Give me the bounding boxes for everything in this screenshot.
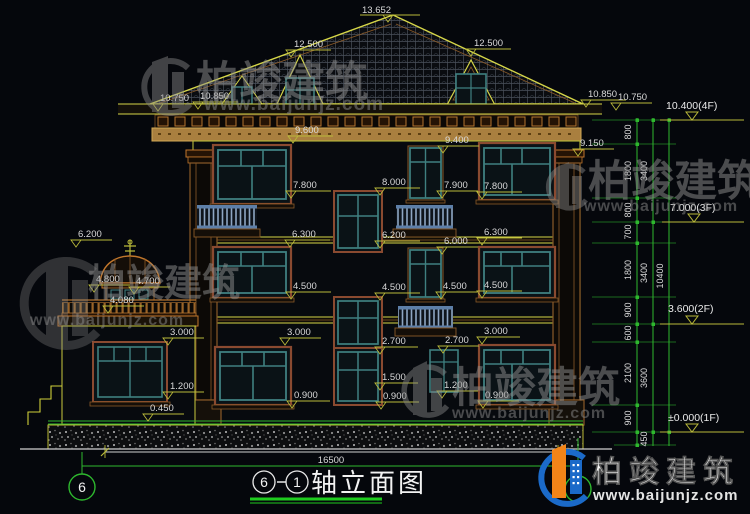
- seg-1800b: 1800: [623, 260, 633, 280]
- seg-2100: 2100: [623, 363, 633, 383]
- window-2f-small: [408, 248, 443, 299]
- watermark-bottom: 柏竣建筑 www.baijunjz.com: [404, 361, 620, 422]
- dim-w1r-head: 3.000: [484, 326, 508, 337]
- dim-stair3-sill: 6.200: [382, 230, 406, 241]
- dim-w2s-head: 6.000: [444, 236, 468, 247]
- seg-800a: 800: [623, 124, 633, 139]
- railing-3f-mid: [396, 205, 453, 229]
- window-3f-stair: [334, 191, 382, 252]
- dim-w3r: 7.800: [484, 181, 508, 192]
- seg-900a: 900: [623, 302, 633, 317]
- dim-ridge: 13.652: [362, 5, 391, 16]
- dim-w1s-head: 2.700: [445, 335, 469, 346]
- seg-600: 600: [623, 325, 633, 340]
- title-text: 轴立面图: [311, 468, 427, 498]
- overall-10400: 10400: [655, 263, 665, 288]
- watermark-top: 柏竣建筑 www.baijunjz.com: [144, 56, 384, 115]
- dim-w2d: 4.500: [484, 280, 508, 291]
- dim-stair3-head: 8.000: [382, 177, 406, 188]
- dim-annex-sill: 1.200: [170, 381, 194, 392]
- watermark-url-bottom: www.baijunjz.com: [451, 405, 606, 422]
- annex-window: [93, 342, 167, 402]
- seg-700: 700: [623, 224, 633, 239]
- window-1f-stair: [334, 348, 382, 405]
- level-4f: 10.400(4F): [666, 100, 717, 112]
- dim-w3l: 7.800: [293, 180, 317, 191]
- dim-w2a: 4.500: [293, 281, 317, 292]
- dim-turret-finial: 6.200: [78, 229, 102, 240]
- ground: [20, 421, 612, 449]
- dim-w2b: 4.500: [382, 282, 406, 293]
- railing-3f-left: [197, 205, 257, 229]
- floor-3400b: 3400: [639, 263, 649, 283]
- dim-w3s: 7.900: [444, 180, 468, 191]
- floor-band-2f: [193, 317, 580, 323]
- dim-stair1-head: 2.700: [382, 336, 406, 347]
- level-1f: ±0.000(1F): [668, 412, 719, 424]
- dim-overall-width: 16500: [318, 455, 344, 466]
- seg-450: 450: [639, 431, 649, 446]
- window-2f-stair: [334, 297, 382, 348]
- elevation-drawing: 800 1800 800 700 1800 900 600 2100 900 4…: [0, 0, 750, 514]
- dim-dormer-left: 12.500: [294, 39, 323, 50]
- railing-2f-mid: [398, 306, 453, 329]
- watermark-url-left: www.baijunjz.com: [29, 312, 184, 329]
- dim-w2c: 4.500: [443, 281, 467, 292]
- dim-stair1-mid: 1.500: [382, 372, 406, 383]
- dim-fl3l: 6.300: [292, 229, 316, 240]
- floor-3600: 3600: [639, 368, 649, 388]
- title-axis-start: 6: [260, 474, 268, 490]
- watermark-right: 柏竣建筑 www.baijunjz.com: [548, 158, 750, 215]
- dim-cornice-left: 9.600: [295, 125, 319, 136]
- dim-cornice-center: 9.400: [445, 135, 469, 146]
- watermark-url-right: www.baijunjz.com: [583, 198, 738, 215]
- cad-elevation-screenshot: 800 1800 800 700 1800 900 600 2100 900 4…: [0, 0, 750, 514]
- dim-plinth: 0.450: [150, 403, 174, 414]
- window-1f-left: [215, 347, 291, 405]
- watermark-brand-bottom: 柏竣建筑: [452, 364, 620, 411]
- dim-w1l-sill: 0.900: [294, 390, 318, 401]
- title-axis-end: 1: [293, 474, 301, 490]
- watermark-url-top: www.baijunjz.com: [203, 94, 384, 115]
- brand-name: 柏竣建筑: [592, 455, 740, 489]
- dim-dormer-right: 12.500: [474, 38, 503, 49]
- watermark-brand-left: 柏竣建筑: [88, 263, 240, 305]
- dim-eave-ri: 10.850: [588, 89, 617, 100]
- dim-w1l-head: 3.000: [287, 327, 311, 338]
- level-2f: 3.600(2F): [668, 303, 714, 315]
- axis-bubble-left-label: 6: [78, 479, 86, 495]
- dim-fl3r: 6.300: [484, 227, 508, 238]
- dim-eave-ro: 10.750: [618, 92, 647, 103]
- plinth: [48, 425, 583, 449]
- dim-pilaster-right: 9.150: [580, 138, 604, 149]
- seg-900b: 900: [623, 410, 633, 425]
- brand-url: www.baijunjz.com: [592, 487, 738, 504]
- window-3f-left: [213, 145, 291, 204]
